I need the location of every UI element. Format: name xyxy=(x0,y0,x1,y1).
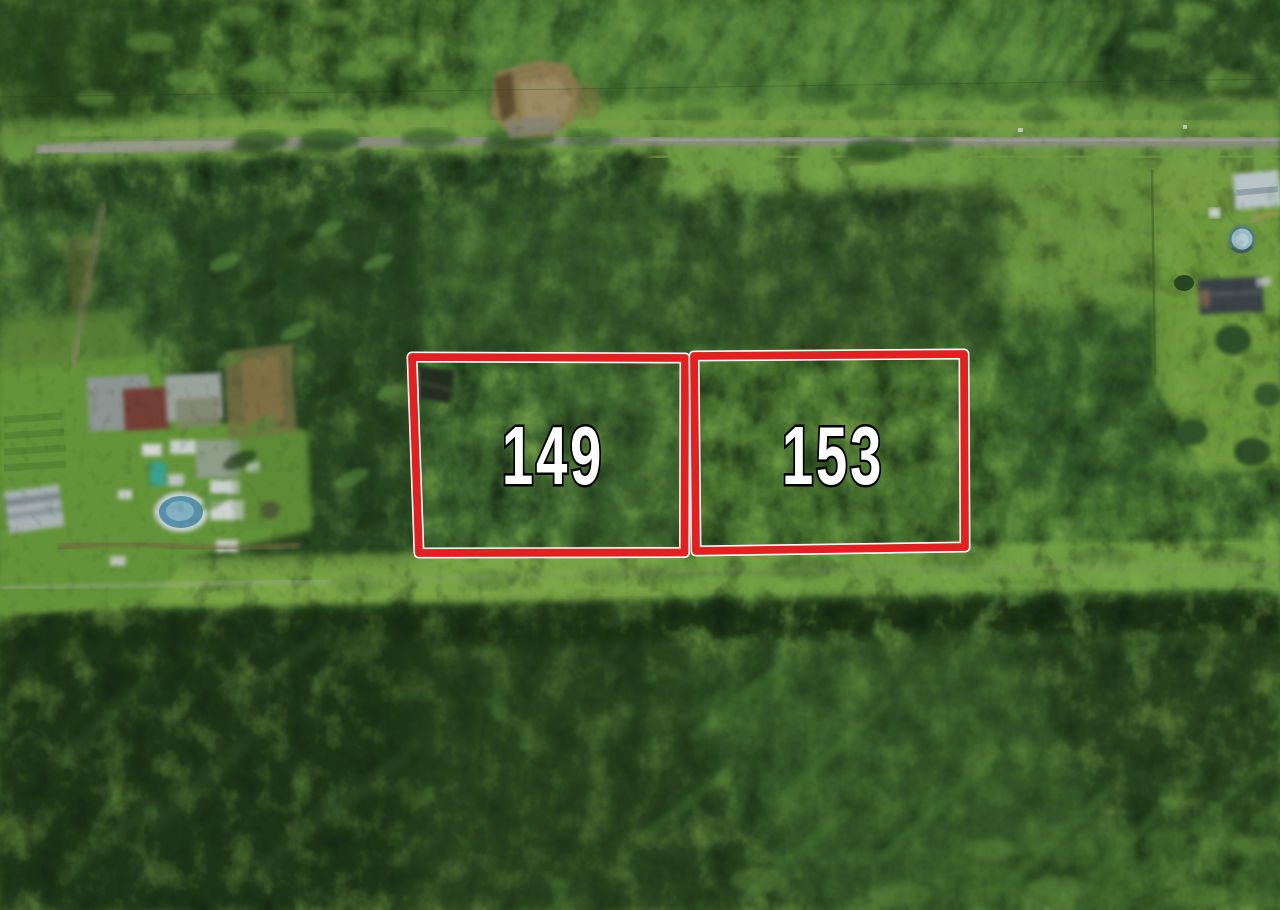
svg-text:149: 149 xyxy=(502,410,604,502)
svg-text:153: 153 xyxy=(782,410,884,502)
